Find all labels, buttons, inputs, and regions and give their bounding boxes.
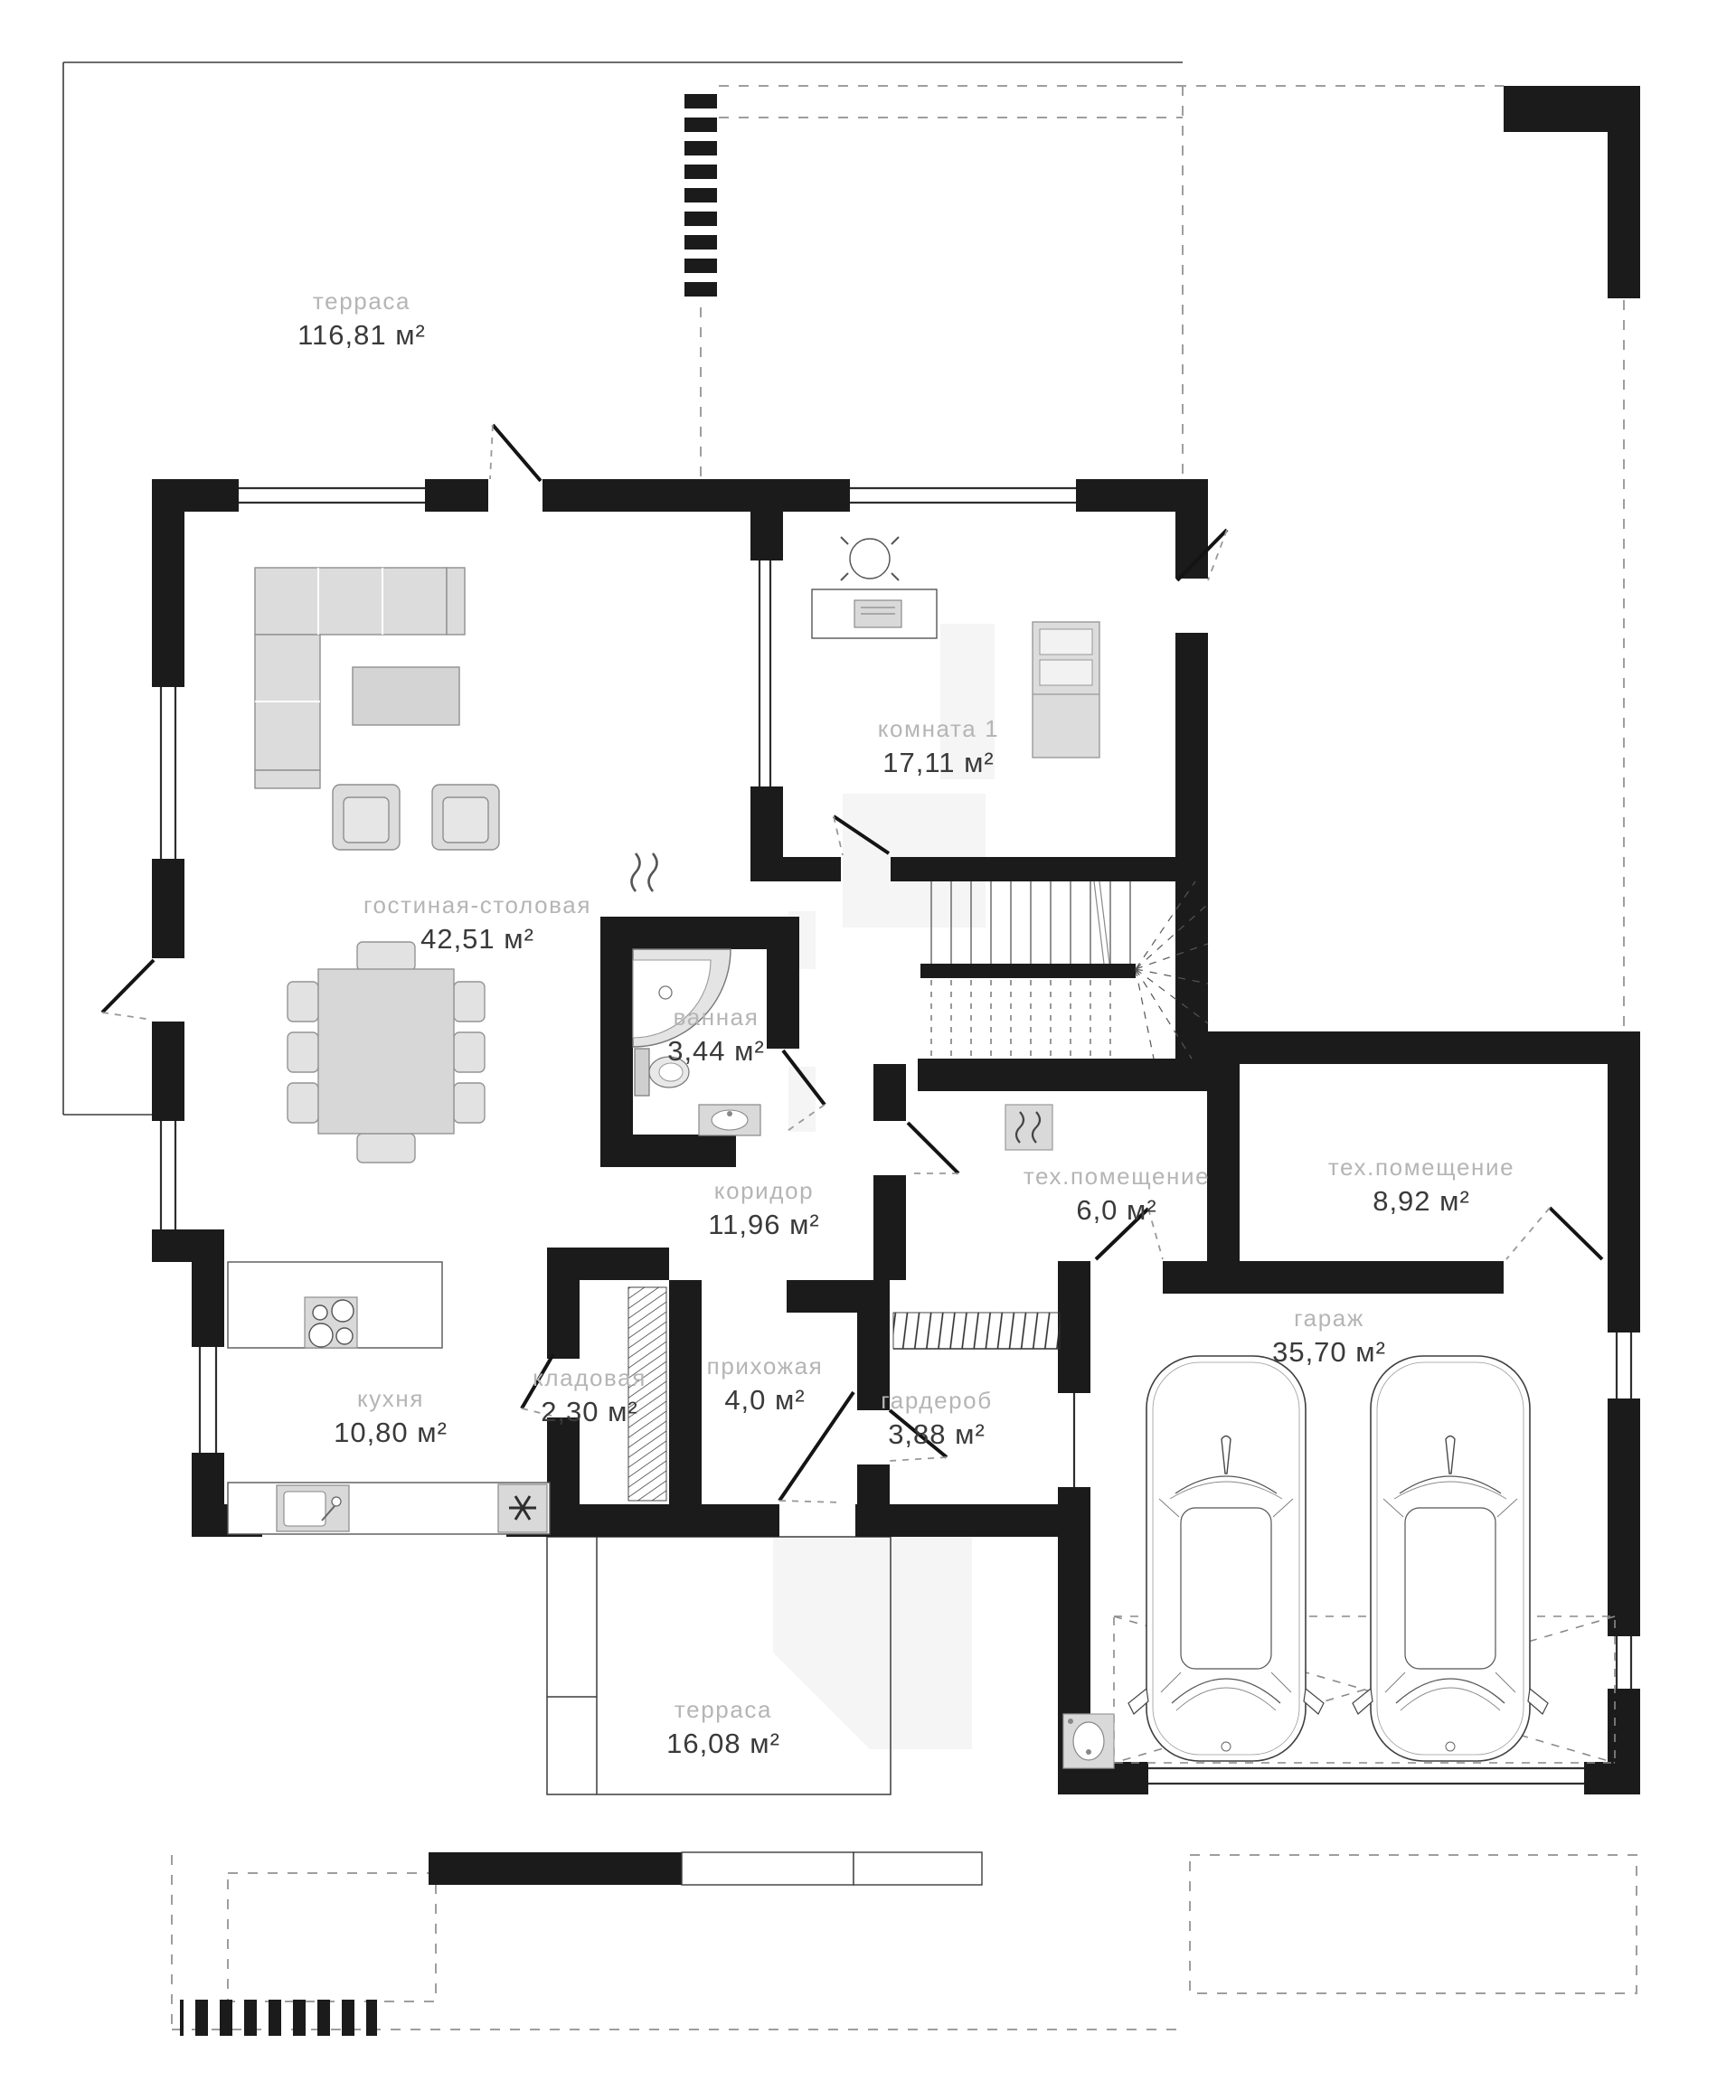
exterior-steps xyxy=(429,1852,982,1885)
car-left xyxy=(1128,1356,1324,1761)
entry-canopy-hatch xyxy=(684,87,717,300)
garage-contents xyxy=(1063,1356,1615,1768)
dining-table xyxy=(288,942,485,1163)
floor-plan-drawing xyxy=(0,0,1736,2100)
boiler-icon xyxy=(1005,1105,1052,1150)
living-room-furniture xyxy=(255,568,499,850)
fireplace-icon xyxy=(632,853,657,891)
curb-hatch xyxy=(180,2000,377,2036)
kitchen-fixtures xyxy=(228,1262,550,1534)
water-heater-icon xyxy=(1063,1714,1114,1768)
bathroom-fixtures xyxy=(633,949,760,1135)
floor-plan-page: терраса116,81 м²комната 117,11 м²гостина… xyxy=(0,0,1736,2100)
car-right xyxy=(1353,1356,1548,1761)
